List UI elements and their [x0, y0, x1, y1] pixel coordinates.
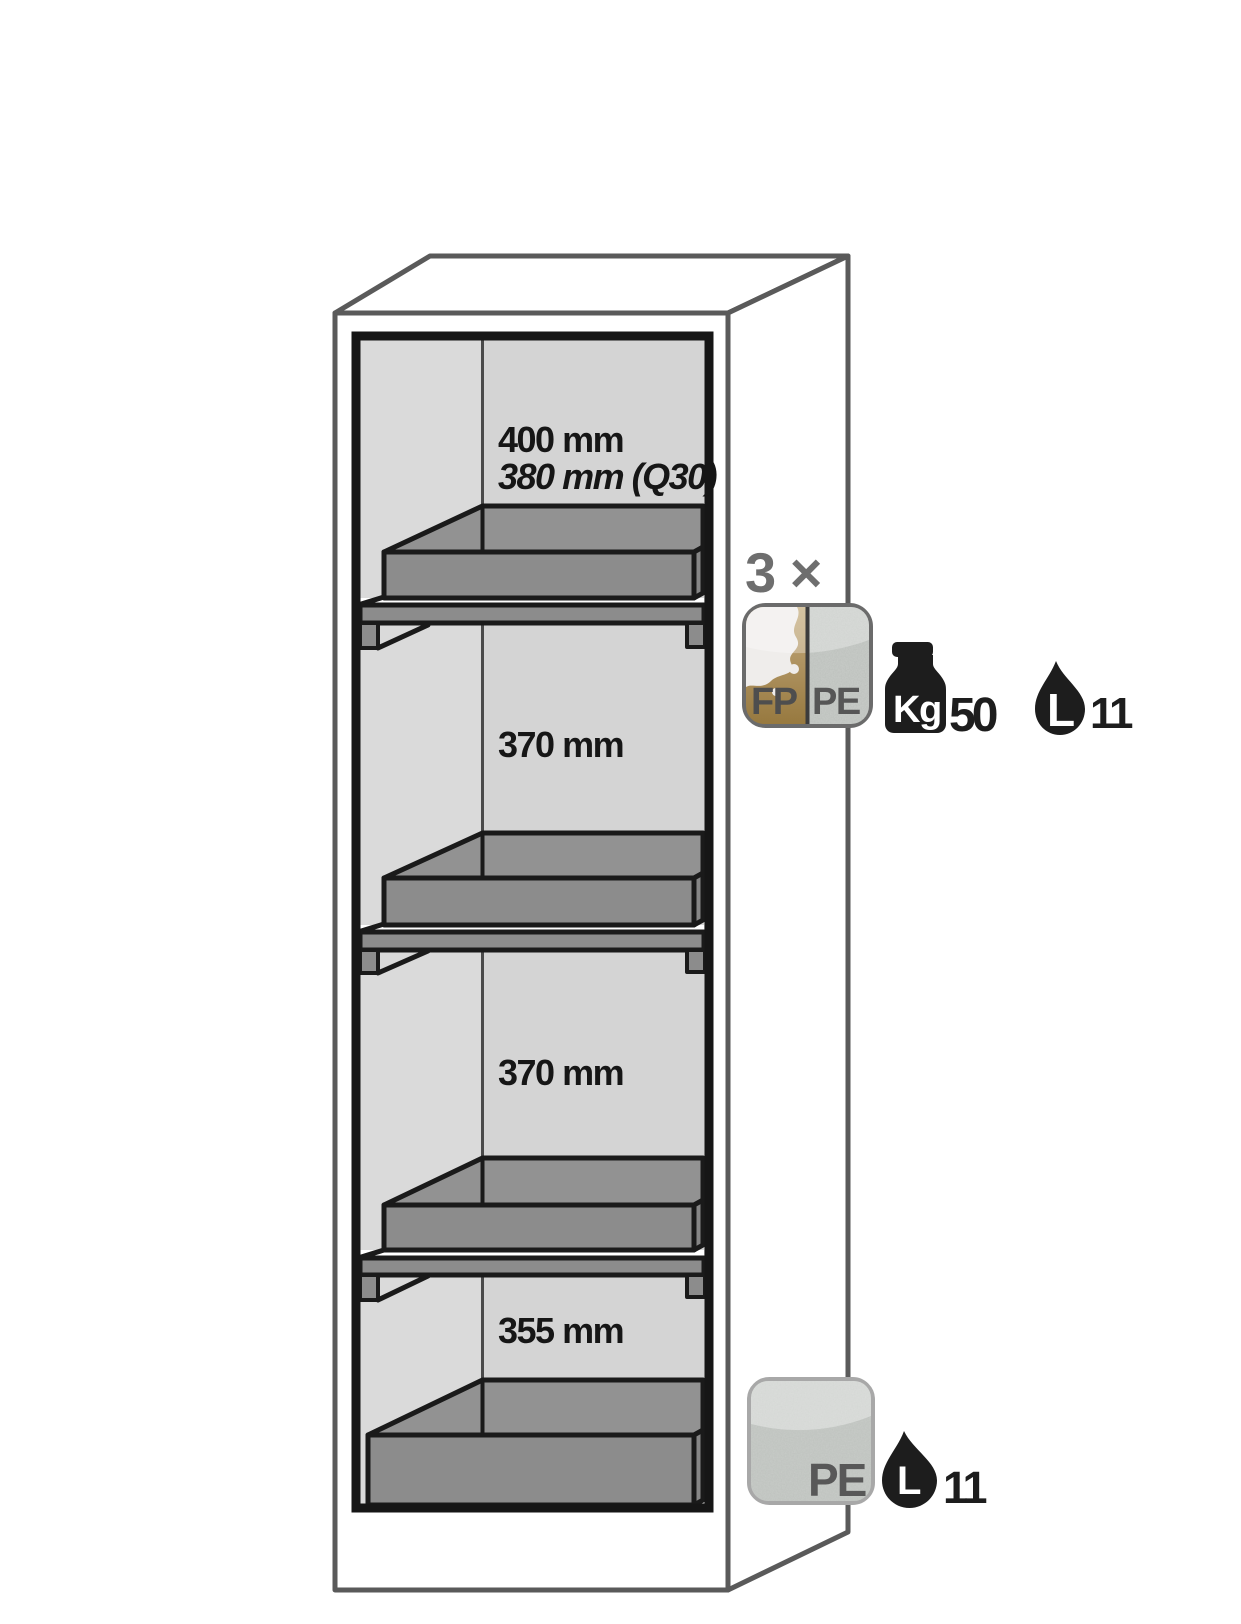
compartment-1-q30-label: 380 mm (Q30) [498, 456, 717, 497]
page: 400 mm 380 mm (Q30) 370 mm 370 mm 355 mm… [0, 0, 1241, 1624]
compartment-1-height-label: 400 mm [498, 419, 623, 460]
compartment-3-height-label: 370 mm [498, 1052, 623, 1093]
shelf-board [360, 1258, 704, 1275]
tray-count-label: 3 × [745, 541, 821, 604]
pe-label: PE [812, 681, 860, 723]
sump-annotation: PE L 11 [751, 1381, 987, 1514]
shelf-bracket-right [687, 623, 705, 647]
liquid-drop-icon: L [1035, 661, 1085, 736]
compartment-4-height-label: 355 mm [498, 1310, 623, 1351]
tray-front-face [384, 1205, 694, 1250]
weight-handle [892, 642, 933, 657]
liquid-drop-icon: L [882, 1431, 937, 1508]
spill-drop [789, 664, 799, 674]
shelf-bracket-left [360, 623, 378, 648]
fp-label: FP [751, 681, 798, 723]
weight-unit-label: Kg [893, 689, 941, 731]
pe-label: PE [808, 1454, 866, 1506]
volume-value-label: 11 [943, 1462, 987, 1513]
tray-front-face [384, 878, 694, 925]
volume-value-label: 11 [1090, 689, 1133, 738]
shelf-bracket-right [687, 1275, 705, 1297]
kettlebell-weight-icon: Kg [885, 642, 946, 733]
volume-unit-label: L [1047, 684, 1075, 736]
compartment-2-height-label: 370 mm [498, 724, 623, 765]
tray-front-face [384, 552, 694, 598]
weight-value-label: 50 [949, 689, 997, 742]
tray-front-face [368, 1435, 694, 1505]
volume-unit-label: L [897, 1459, 921, 1503]
shelf-board [360, 605, 704, 623]
shelf-bracket-left [360, 950, 378, 973]
shelf-annotation: 3 × FP PE Kg 50 L [745, 541, 1133, 742]
shelf-board [360, 932, 704, 950]
shelf-bracket-left [360, 1275, 378, 1300]
shelf-bracket-right [687, 950, 705, 972]
cabinet-diagram: 400 mm 380 mm (Q30) 370 mm 370 mm 355 mm… [0, 0, 1241, 1624]
pe-sump-tray-icon: PE [751, 1381, 872, 1507]
fp-pe-split-tray-icon: FP PE [746, 607, 870, 725]
